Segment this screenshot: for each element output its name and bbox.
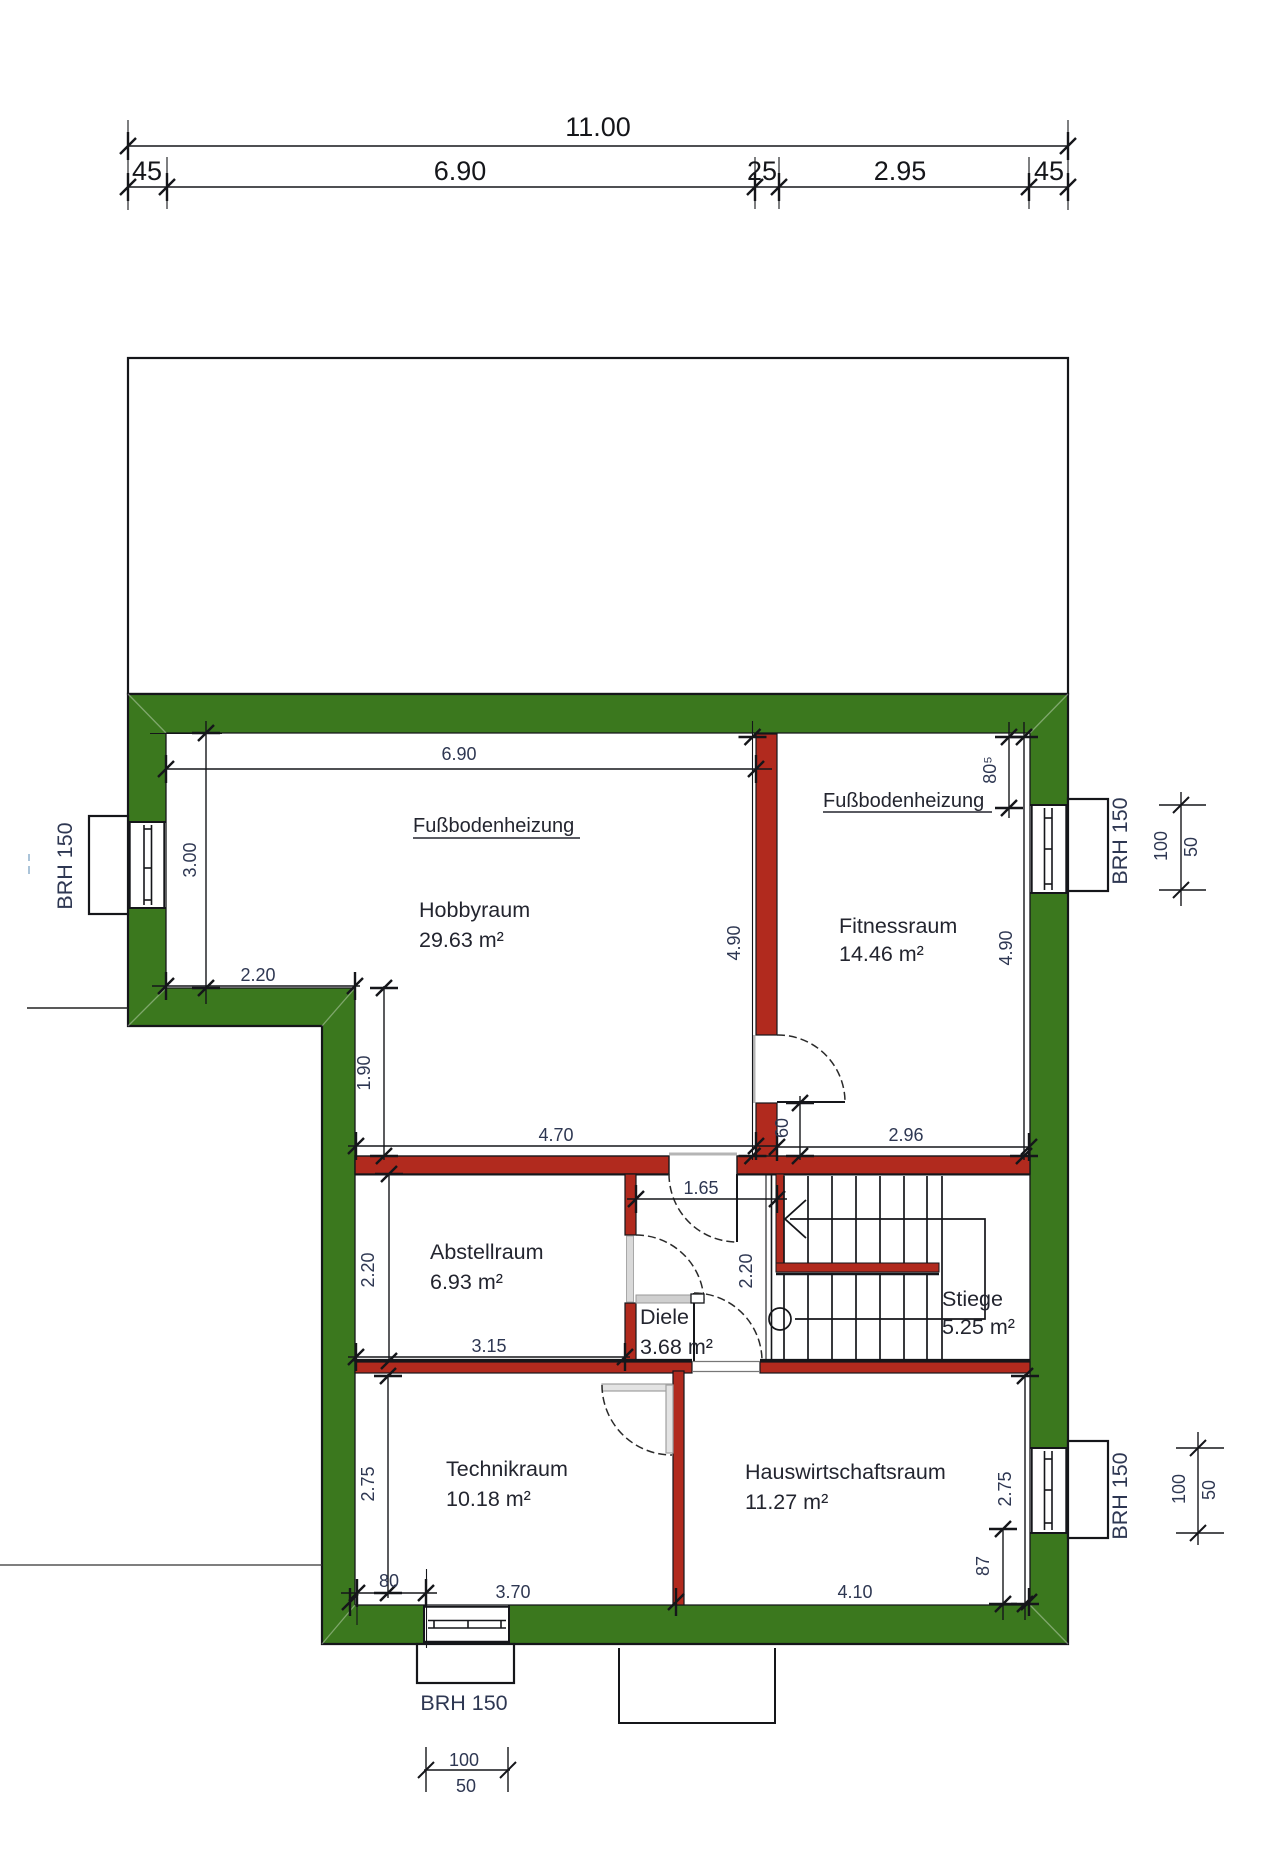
svg-text:50: 50	[1181, 837, 1201, 857]
svg-text:100: 100	[449, 1750, 479, 1770]
svg-text:Stiege: Stiege	[942, 1287, 1003, 1311]
svg-text:Fitnessraum: Fitnessraum	[839, 914, 957, 938]
svg-text:100: 100	[1169, 1474, 1189, 1504]
svg-text:4.70: 4.70	[538, 1125, 573, 1145]
svg-text:10.18 m²: 10.18 m²	[446, 1487, 531, 1511]
svg-text:3.68 m²: 3.68 m²	[640, 1335, 713, 1359]
svg-text:3.00: 3.00	[180, 842, 200, 877]
svg-text:2.20: 2.20	[736, 1253, 756, 1288]
svg-text:Hobbyraum: Hobbyraum	[419, 898, 530, 922]
svg-text:50: 50	[1199, 1480, 1219, 1500]
svg-text:45: 45	[132, 156, 162, 186]
svg-text:2.20: 2.20	[358, 1252, 378, 1287]
svg-text:3.70: 3.70	[495, 1582, 530, 1602]
svg-text:100: 100	[1151, 831, 1171, 861]
svg-text:6.90: 6.90	[441, 744, 476, 764]
svg-text:6.90: 6.90	[434, 156, 487, 186]
svg-text:25: 25	[747, 156, 777, 186]
svg-text:1.90: 1.90	[354, 1055, 374, 1090]
svg-text:Hauswirtschaftsraum: Hauswirtschaftsraum	[745, 1460, 946, 1484]
svg-text:4.90: 4.90	[724, 925, 744, 960]
svg-text:Fußbodenheizung: Fußbodenheizung	[823, 790, 984, 812]
svg-text:80⁵: 80⁵	[980, 756, 1000, 783]
svg-text:3.15: 3.15	[471, 1336, 506, 1356]
svg-text:BRH 150: BRH 150	[1108, 1452, 1132, 1539]
svg-text:14.46 m²: 14.46 m²	[839, 942, 924, 966]
svg-text:Abstellraum: Abstellraum	[430, 1240, 544, 1264]
svg-text:80: 80	[379, 1571, 399, 1591]
svg-text:60: 60	[772, 1118, 792, 1138]
svg-text:50: 50	[456, 1776, 476, 1796]
svg-text:5.25 m²: 5.25 m²	[942, 1315, 1015, 1339]
svg-text:2.96: 2.96	[888, 1125, 923, 1145]
svg-text:4.10: 4.10	[837, 1582, 872, 1602]
svg-text:45: 45	[1034, 156, 1064, 186]
svg-text:4.90: 4.90	[996, 930, 1016, 965]
svg-text:6.93 m²: 6.93 m²	[430, 1270, 503, 1294]
svg-text:Technikraum: Technikraum	[446, 1457, 568, 1481]
svg-text:1.65: 1.65	[683, 1178, 718, 1198]
svg-text:Fußbodenheizung: Fußbodenheizung	[413, 815, 574, 837]
svg-text:11.00: 11.00	[565, 112, 631, 142]
svg-text:2.75: 2.75	[358, 1466, 378, 1501]
svg-text:BRH 150: BRH 150	[53, 822, 77, 909]
svg-text:Diele: Diele	[640, 1305, 689, 1329]
svg-text:29.63 m²: 29.63 m²	[419, 928, 504, 952]
svg-text:BRH 150: BRH 150	[1108, 797, 1132, 884]
svg-text:87: 87	[973, 1556, 993, 1576]
svg-text:2.95: 2.95	[874, 156, 927, 186]
svg-text:2.20: 2.20	[240, 965, 275, 985]
svg-text:11.27 m²: 11.27 m²	[745, 1490, 828, 1514]
svg-text:BRH 150: BRH 150	[420, 1691, 507, 1715]
svg-text:2.75: 2.75	[995, 1471, 1015, 1506]
